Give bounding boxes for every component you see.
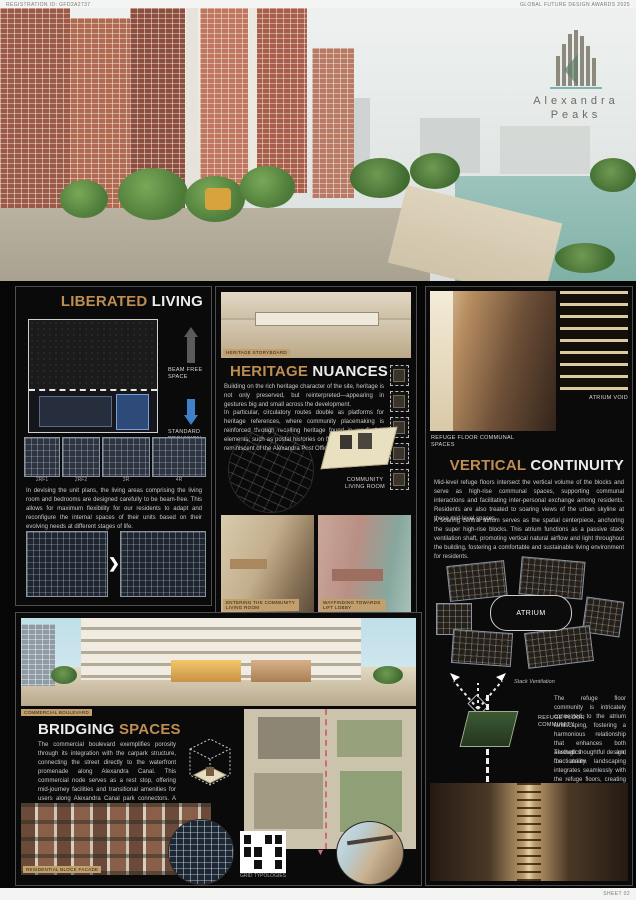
atrium-floor-plan: ATRIUM: [434, 559, 624, 667]
panel-vertical-continuity: ATRIUM VOID REFUGE FLOOR COMMUNAL SPACES…: [425, 286, 633, 886]
title-rest: LIVING: [147, 293, 203, 310]
atrium-shaft: [517, 783, 541, 881]
grid-typologies-icon: [240, 831, 286, 873]
top-margin-strip: REGISTRATION ID: GFD2A2737 GLOBAL FUTURE…: [0, 0, 636, 8]
tree: [590, 158, 636, 192]
pedestrian-axis: [325, 709, 337, 849]
refuge-floor-render: [430, 291, 556, 431]
title-accent: SPACES: [115, 721, 181, 738]
title-accent: LIBERATED: [61, 293, 148, 310]
reconfig-plan-before: [26, 531, 108, 597]
atrium-void-label: ATRIUM VOID: [560, 395, 628, 402]
play-canopy: [118, 168, 188, 220]
play-canopy: [60, 180, 108, 218]
play-structure: [205, 188, 231, 210]
panel-bridging-spaces: COMMERCIAL BOULEVARD BRIDGING SPACES The…: [15, 612, 422, 886]
tree: [555, 243, 615, 273]
community-room-photo: ENTERING THE COMMUNITY LIVING ROOM: [221, 515, 314, 613]
residential-tower: [312, 48, 354, 198]
atrium-void-render: [560, 291, 628, 391]
wayfinding-photo-label: WAYFINDING TOWARDS LIFT LOBBY: [320, 599, 386, 611]
section-bg-tower: [21, 624, 55, 686]
liberated-living-title: LIBERATED LIVING: [61, 293, 203, 310]
plan-wing: [524, 625, 594, 669]
commercial-node-axon: [184, 731, 236, 797]
hero-render: Alexandra Peaks: [0, 8, 636, 281]
plan-wing: [451, 629, 513, 667]
bridging-spaces-title: BRIDGING SPACES: [38, 721, 181, 738]
photo-table: [230, 559, 267, 569]
dashed-datum-line: [29, 389, 157, 391]
heritage-nuances-title: HERITAGE NUANCES: [230, 363, 388, 380]
refuge-floor-box: [460, 711, 519, 747]
vertical-para2: A soaring central atrium serves as the s…: [434, 517, 624, 562]
unit-plan-row: 2RF1 2RF2 3R 4R: [24, 437, 206, 483]
pink-down-arrow-icon: ▼: [316, 847, 325, 857]
unit-plan-4r: 4R: [152, 437, 206, 483]
residential-tower: [0, 8, 70, 223]
community-living-room-label: COMMUNITY LIVING ROOM: [338, 477, 392, 492]
boulevard-detail-circle: [336, 821, 404, 885]
refuge-floor-label: REFUGE FLOOR COMMUNAL SPACES: [431, 435, 531, 450]
panel-heritage-nuances: HERITAGE STORYBOARD HERITAGE NUANCES Bui…: [215, 286, 417, 620]
stamp-icon: [390, 365, 409, 386]
service-zone: [39, 396, 111, 427]
down-arrow-icon: [184, 415, 198, 425]
plan-block: [254, 773, 323, 829]
atrium-label: ATRIUM: [516, 610, 545, 617]
shopfront: [251, 660, 311, 682]
community-living-room-axon: [320, 423, 398, 475]
up-arrow-shaft: [187, 337, 195, 363]
sheet-number: SHEET 02: [603, 891, 630, 897]
bright-window: [430, 291, 453, 431]
stack-ventilation-label: Stack Ventilation: [514, 679, 555, 685]
plan-wing: [446, 560, 507, 602]
vertical-continuity-title: VERTICAL CONTINUITY: [450, 457, 624, 474]
shopfront: [171, 660, 241, 682]
tree: [410, 153, 460, 189]
up-arrow-icon: [184, 327, 198, 337]
logo-name-line2: Peaks: [520, 109, 632, 123]
unit-plan-3r: 3R: [102, 437, 150, 483]
unit-plan-label: 2RF1: [24, 477, 60, 483]
tree: [373, 666, 403, 684]
atrium-interior-render: [430, 783, 628, 881]
logo-tower-icon: [520, 30, 632, 90]
axon-furniture: [358, 433, 372, 449]
beam-free-label: BEAM FREE SPACE: [168, 367, 214, 382]
beam-free-annotation: BEAM FREE SPACE: [168, 327, 214, 382]
title-rest: CONTINUITY: [526, 457, 624, 474]
tree: [350, 158, 410, 198]
axon-furniture: [340, 435, 352, 449]
residential-tower: [200, 8, 248, 198]
tree: [51, 666, 77, 684]
liberated-living-body: In devising the unit plans, the living a…: [26, 487, 202, 532]
tower-core: [186, 8, 198, 203]
title-rest: BRIDGING: [38, 721, 115, 738]
panel-liberated-living: LIBERATED LIVING BEAM FREE SPACE STANDAR…: [15, 286, 212, 606]
title-accent: VERTICAL: [450, 457, 526, 474]
title-accent: HERITAGE: [230, 363, 308, 380]
kitchen-zone: [116, 394, 149, 430]
beam-free-axon-diagram: [28, 319, 158, 433]
bottom-margin-strip: SHEET 02: [0, 888, 636, 900]
unit-plan-2rf1: 2RF1: [24, 437, 60, 483]
commercial-section-render: [21, 618, 416, 706]
chevron-right-icon: ❯: [108, 555, 120, 572]
photo-bench: [332, 569, 383, 581]
unit-plan-2rf2: 2RF2: [62, 437, 100, 483]
plan-block: [258, 717, 320, 759]
title-rest: NUANCES: [308, 363, 388, 380]
circle-beam: [347, 834, 393, 844]
plan-wing: [518, 556, 585, 599]
commercial-boulevard-label: COMMERCIAL BOULEVARD: [21, 709, 92, 716]
play-canopy: [240, 166, 295, 208]
unit-plan-label: 4R: [152, 477, 206, 483]
beam-free-zone: [29, 320, 157, 389]
wayfinding-photo: WAYFINDING TOWARDS LIFT LOBBY: [318, 515, 411, 613]
heritage-storyboard-label: HERITAGE STORYBOARD: [223, 349, 290, 356]
plan-green: [337, 720, 402, 756]
unit-plan-label: 3R: [102, 477, 150, 483]
reconfig-plan-after: [120, 531, 206, 597]
project-logo: Alexandra Peaks: [520, 30, 632, 135]
gallery-wall: [255, 312, 379, 326]
facade-detail-circle: [168, 819, 234, 885]
grid-typologies-label: GRID TYPOLOGIES: [238, 873, 288, 879]
heritage-map-circle: [228, 427, 314, 513]
heritage-storyboard-image: HERITAGE STORYBOARD: [221, 292, 411, 358]
down-arrow-shaft: [187, 399, 195, 415]
presentation-board: REGISTRATION ID: GFD2A2737 GLOBAL FUTURE…: [0, 0, 636, 900]
stamp-icon: [390, 391, 409, 412]
atrium-core: ATRIUM: [490, 595, 572, 631]
heritage-para1: Building on the rich heritage character …: [224, 383, 384, 410]
residential-facade-label: RESIDENTIAL BLOCK FACADE: [23, 866, 101, 873]
community-room-photo-label: ENTERING THE COMMUNITY LIVING ROOM: [223, 599, 299, 611]
unit-plan-label: 2RF2: [62, 477, 100, 483]
logo-name-line1: Alexandra: [520, 95, 632, 109]
